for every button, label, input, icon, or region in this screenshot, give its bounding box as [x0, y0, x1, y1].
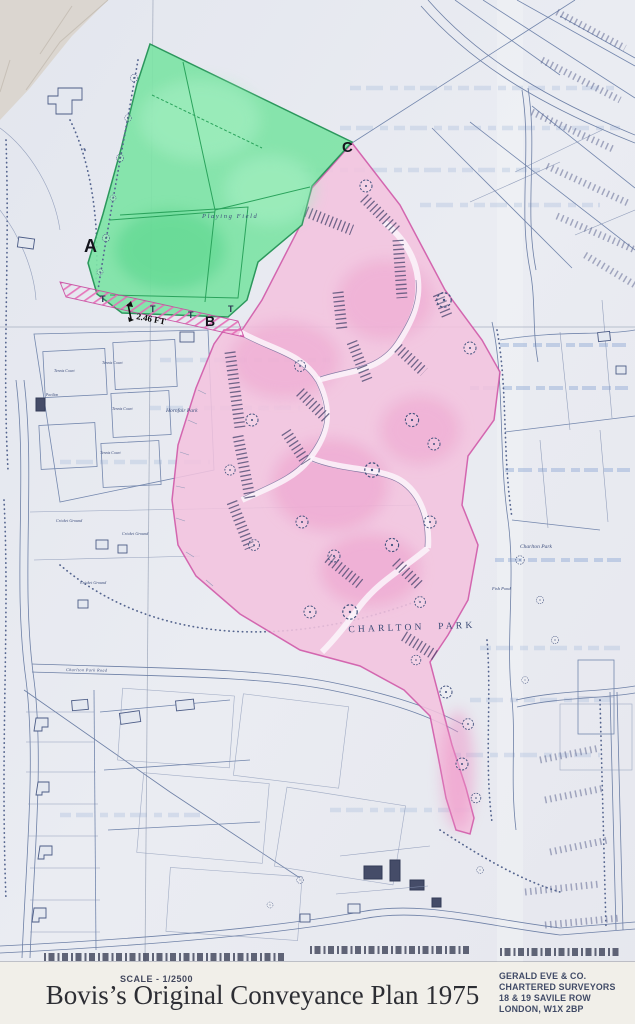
- charlton-house-label: Charlton Park: [520, 544, 552, 550]
- boundary-t-mark: T: [188, 310, 194, 320]
- boundary-t-mark: T: [150, 304, 156, 314]
- fish-pond-label: Fish Pond: [491, 586, 511, 591]
- scanned-conveyance-plan: A B C T T T T 2.46 FT Playing Field CHAR…: [0, 0, 635, 1024]
- surveyor-line: CHARTERED SURVEYORS: [499, 982, 631, 993]
- label-point-c: C: [342, 139, 353, 156]
- pavilion-label: Pavilion: [45, 393, 58, 397]
- boundary-t-mark: T: [100, 294, 106, 304]
- label-point-b: B: [205, 313, 215, 329]
- plan-caption: Bovis’s Original Conveyance Plan 1975: [40, 980, 485, 1011]
- tennis-court-label: Tennis Court: [112, 406, 134, 411]
- tennis-court-label: Tennis Court: [54, 368, 76, 373]
- label-point-a: A: [84, 236, 97, 256]
- hornfair-park-label: Hornfair Park: [165, 407, 198, 414]
- surveyor-line: 18 & 19 SAVILE ROW: [499, 993, 631, 1004]
- tennis-court-label: Tennis Court: [102, 360, 124, 365]
- boundary-t-mark: T: [228, 304, 234, 314]
- tennis-court-label: Tennis Court: [100, 450, 122, 455]
- road-name-label: Charlton Park Road: [66, 667, 108, 673]
- cricket-ground-label: Cricket Ground: [122, 531, 149, 536]
- surveyor-block: GERALD EVE & CO. CHARTERED SURVEYORS 18 …: [499, 971, 631, 1015]
- cricket-ground-label: Cricket Ground: [80, 580, 107, 585]
- cricket-ground-label: Cricket Ground: [56, 518, 83, 523]
- map-image: A B C T T T T 2.46 FT Playing Field CHAR…: [0, 0, 635, 1024]
- playing-field-label: Playing Field: [201, 213, 258, 220]
- surveyor-line: GERALD EVE & CO.: [499, 971, 631, 982]
- surveyor-line: LONDON, W1X 2BP: [499, 1004, 631, 1015]
